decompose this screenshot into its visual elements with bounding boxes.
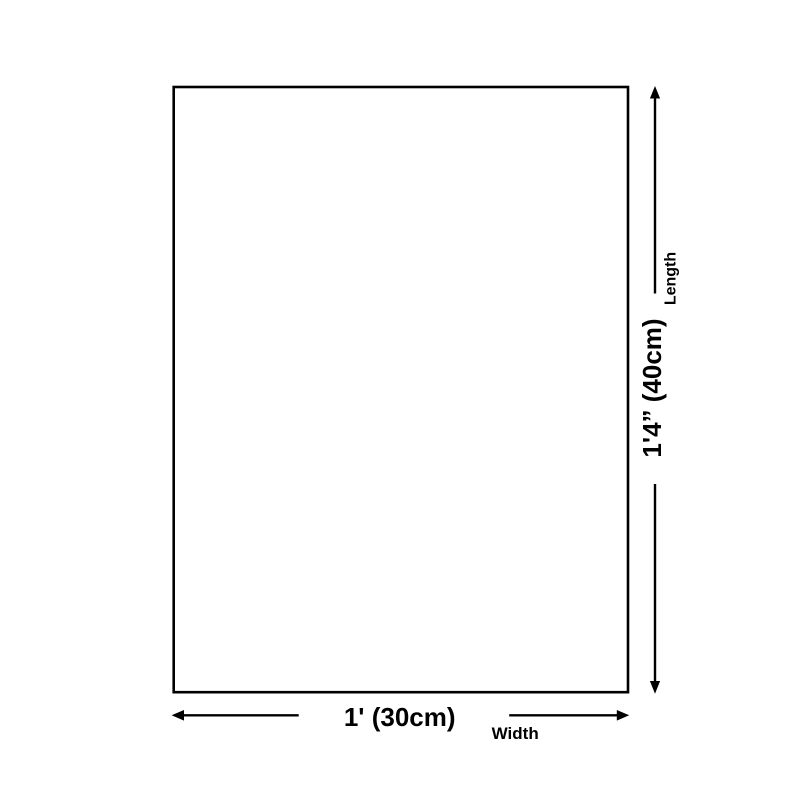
svg-text:1'4” (40cm): 1'4” (40cm) [637,318,667,457]
svg-text:Length: Length [663,252,680,305]
svg-text:1' (30cm): 1' (30cm) [344,702,456,732]
svg-text:Width: Width [492,724,539,743]
